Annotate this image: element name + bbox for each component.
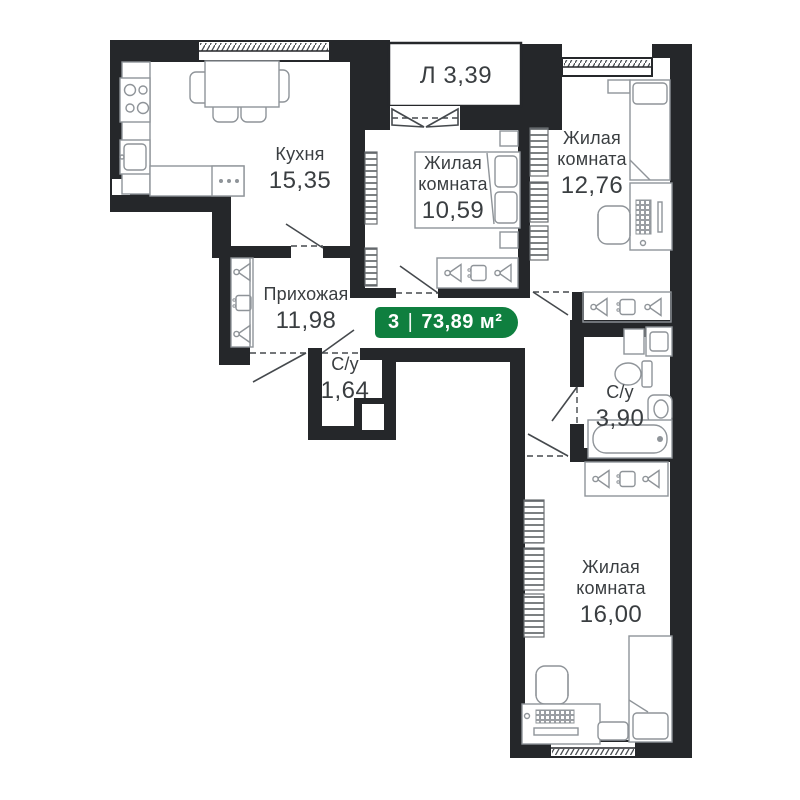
bedroom2-window-icon <box>562 58 652 76</box>
hanger-icon <box>593 471 609 488</box>
washer-icon <box>646 327 672 356</box>
chair-icon <box>536 666 568 704</box>
floorplan-drawing <box>0 0 800 800</box>
nightstand-icon <box>500 232 518 248</box>
kitchen-furniture <box>120 61 289 196</box>
radiator-icon <box>530 128 548 176</box>
hanger-icon <box>643 471 659 488</box>
shelf-box-icon <box>468 266 486 281</box>
desk-icon <box>522 704 600 744</box>
toilet-icon <box>615 361 652 387</box>
hanger-icon <box>234 326 250 343</box>
hanger-icon <box>591 299 607 316</box>
bedroom1-door-swing-icon <box>396 266 438 293</box>
radiator-icon <box>524 500 544 543</box>
bathroom-large-door-swing-icon <box>552 387 577 424</box>
nightstand-icon <box>608 80 630 93</box>
badge-total-area: 73,89 м² <box>421 311 502 334</box>
bathroom-small-door-swing-icon <box>322 330 358 353</box>
radiator-icon <box>530 226 548 260</box>
shelf-box-icon <box>233 296 251 311</box>
hanger-icon <box>234 264 250 281</box>
hallway-wardrobe <box>231 258 253 347</box>
radiator-icon <box>365 152 377 224</box>
badge-rooms-count: 3 <box>388 311 400 334</box>
shelf-icon <box>624 329 644 354</box>
radiator-icon <box>530 182 548 222</box>
bedroom2-door-swing-icon <box>533 292 572 315</box>
bed-icon <box>630 80 670 180</box>
washbasin-icon <box>648 395 672 423</box>
bedroom1-furniture <box>365 131 520 288</box>
hanger-icon <box>445 265 461 282</box>
bed-icon <box>629 636 672 742</box>
kitchen-sink-icon <box>120 140 150 174</box>
bathroom-large-fixtures <box>588 327 672 458</box>
stove-icon <box>120 78 150 122</box>
entrance-door-swing-icon <box>250 353 306 382</box>
kitchen-counter-bottom <box>150 166 244 196</box>
kitchen-door-swing-icon <box>286 224 323 248</box>
total-area-badge: 3 | 73,89 м² <box>375 307 518 338</box>
desk-icon <box>630 183 672 250</box>
shelf-box-icon <box>617 300 635 315</box>
radiator-icon <box>365 248 377 286</box>
walls <box>110 40 692 758</box>
bed-icon <box>415 152 520 228</box>
badge-separator: | <box>408 311 414 334</box>
bedroom1-wardrobe <box>437 258 518 288</box>
bedroom3-furniture <box>522 462 672 744</box>
kitchen-window-icon <box>198 41 330 61</box>
nightstand-icon <box>500 131 518 146</box>
chair-icon <box>598 206 630 244</box>
windows <box>198 41 652 757</box>
dining-table-icon <box>190 61 289 122</box>
bathtub-icon <box>588 420 672 458</box>
radiator-icon <box>524 594 544 637</box>
hanger-icon <box>645 299 661 316</box>
bedroom3-wardrobe <box>585 462 668 496</box>
floorplan-page: Л 3,39 Кухня 15,35 Жилая комната 10,59 Ж… <box>0 0 800 800</box>
bedroom2-wardrobe <box>583 292 671 322</box>
bedroom3-door-swing-icon <box>527 434 568 456</box>
radiator-icon <box>524 548 544 590</box>
hanger-icon <box>495 265 511 282</box>
nightstand-icon <box>598 722 628 740</box>
shelf-box-icon <box>617 472 635 487</box>
